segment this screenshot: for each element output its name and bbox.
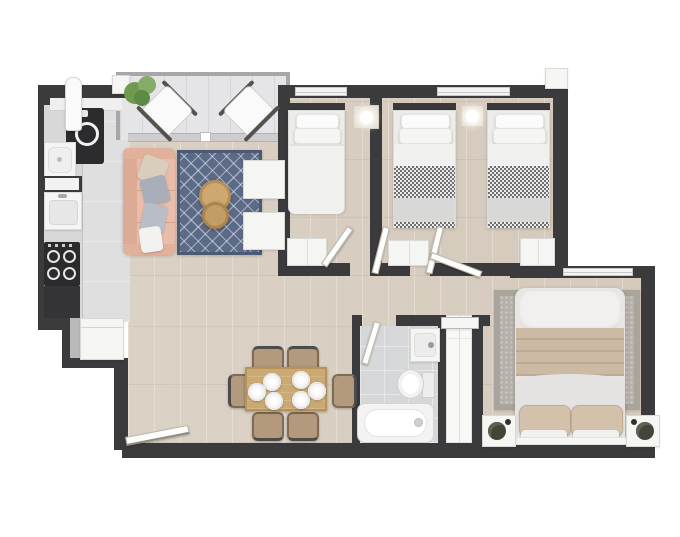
bed2a-pillow-1 (401, 114, 450, 129)
sofa-back (123, 148, 137, 255)
bed2a-checkered-trim (394, 222, 455, 228)
sliding-door-handle (200, 132, 211, 142)
bed2-wardrobe-left (388, 240, 429, 266)
wardrobe-seam (307, 239, 308, 265)
counter-inset (45, 178, 79, 190)
refrigerator (80, 318, 124, 360)
dining-chair-right (332, 374, 357, 408)
nightstand-plant-bud (505, 419, 511, 425)
master-duvet-fold (519, 291, 621, 331)
kitchen-sink-basin (49, 200, 78, 225)
bed2b-gray-blanket (488, 198, 549, 222)
plate (292, 391, 310, 409)
bed2b-checkered-trim (488, 222, 549, 228)
bed1-pillow-2 (294, 128, 341, 144)
burner-4 (63, 267, 76, 280)
closet-shelf-line (447, 338, 471, 339)
bed2b-pillow-1 (495, 114, 544, 129)
kitchen-sink-faucet (58, 194, 67, 198)
wardrobe-seam (409, 241, 410, 265)
bed2-wall-light (461, 105, 484, 127)
light-glow (360, 111, 373, 124)
plate (263, 373, 281, 391)
plate (292, 371, 310, 389)
bed1-pillow-1 (296, 114, 339, 129)
bed2b-pillow-2 (493, 128, 546, 144)
wall-bathroom-top-stub (352, 315, 362, 326)
master-headboard (513, 437, 627, 445)
bed2b-duvet-top (488, 144, 549, 166)
master-window (563, 268, 633, 276)
bedroom2-window (437, 87, 510, 96)
dining-chair-bottom-2 (287, 412, 319, 441)
nightstand-left (482, 415, 516, 447)
refrigerator-side-panel (70, 318, 80, 358)
plate (265, 392, 283, 410)
bed1-duvet (289, 144, 344, 214)
sofa-throw-white (138, 226, 163, 254)
bed2b-headboard (487, 103, 550, 110)
ironing-board (65, 77, 82, 131)
kitchen-dark-counter (42, 176, 82, 192)
nightstand-plant-bud (631, 419, 637, 425)
bed1-wall-light (353, 105, 379, 129)
bed2a-gray-blanket (394, 198, 455, 222)
bathtub (357, 403, 434, 443)
bed2a-duvet-top (394, 144, 455, 166)
dining-chair-bottom-1 (252, 412, 284, 441)
toilet-bowl (397, 369, 424, 399)
bed2b-checkered-blanket (488, 166, 549, 198)
stove (44, 242, 80, 286)
refrigerator-seam (81, 327, 123, 328)
burner-2 (63, 250, 76, 263)
kitchen-lower-cabinet (44, 286, 80, 318)
wall-nook-vertical (62, 322, 70, 362)
bed1-headboard (288, 103, 345, 110)
wardrobe-seam (538, 239, 539, 265)
master-blanket-beige (516, 328, 624, 376)
basin-faucet (428, 342, 434, 348)
closet-front-shelf (441, 317, 479, 329)
exterior-unit-top-right (545, 68, 568, 89)
wall-bottom (122, 443, 655, 458)
light-glow (466, 110, 479, 123)
kitchen-sink (44, 192, 82, 230)
armchair-white-2 (243, 212, 285, 250)
coffee-table-small (202, 202, 229, 229)
nightstand-plant (488, 422, 506, 440)
bathtub-drain (414, 418, 423, 427)
laundry-sink-drain (57, 157, 62, 162)
closet-interior (446, 315, 472, 443)
bed2a-pillow-2 (399, 128, 452, 144)
bed2-wardrobe-right (520, 238, 555, 266)
bed2a-headboard (393, 103, 456, 110)
nightstand-plant (636, 422, 654, 440)
armchair-white-1 (243, 160, 285, 199)
burner-1 (47, 250, 60, 263)
laundry-sink (44, 142, 76, 178)
bathroom-washbasin (410, 328, 440, 362)
stove-knobs (48, 244, 76, 247)
wall-right-upper (553, 85, 568, 270)
burner-3 (47, 267, 60, 280)
plate (248, 383, 266, 401)
bedroom1-window (295, 87, 347, 96)
plate (308, 382, 326, 400)
closet-seam (459, 316, 460, 442)
bed2a-checkered-blanket (394, 166, 455, 198)
nightstand-right (626, 415, 660, 447)
floor-plan: Apartment floor plan - top-down 3D rende… (0, 0, 680, 537)
